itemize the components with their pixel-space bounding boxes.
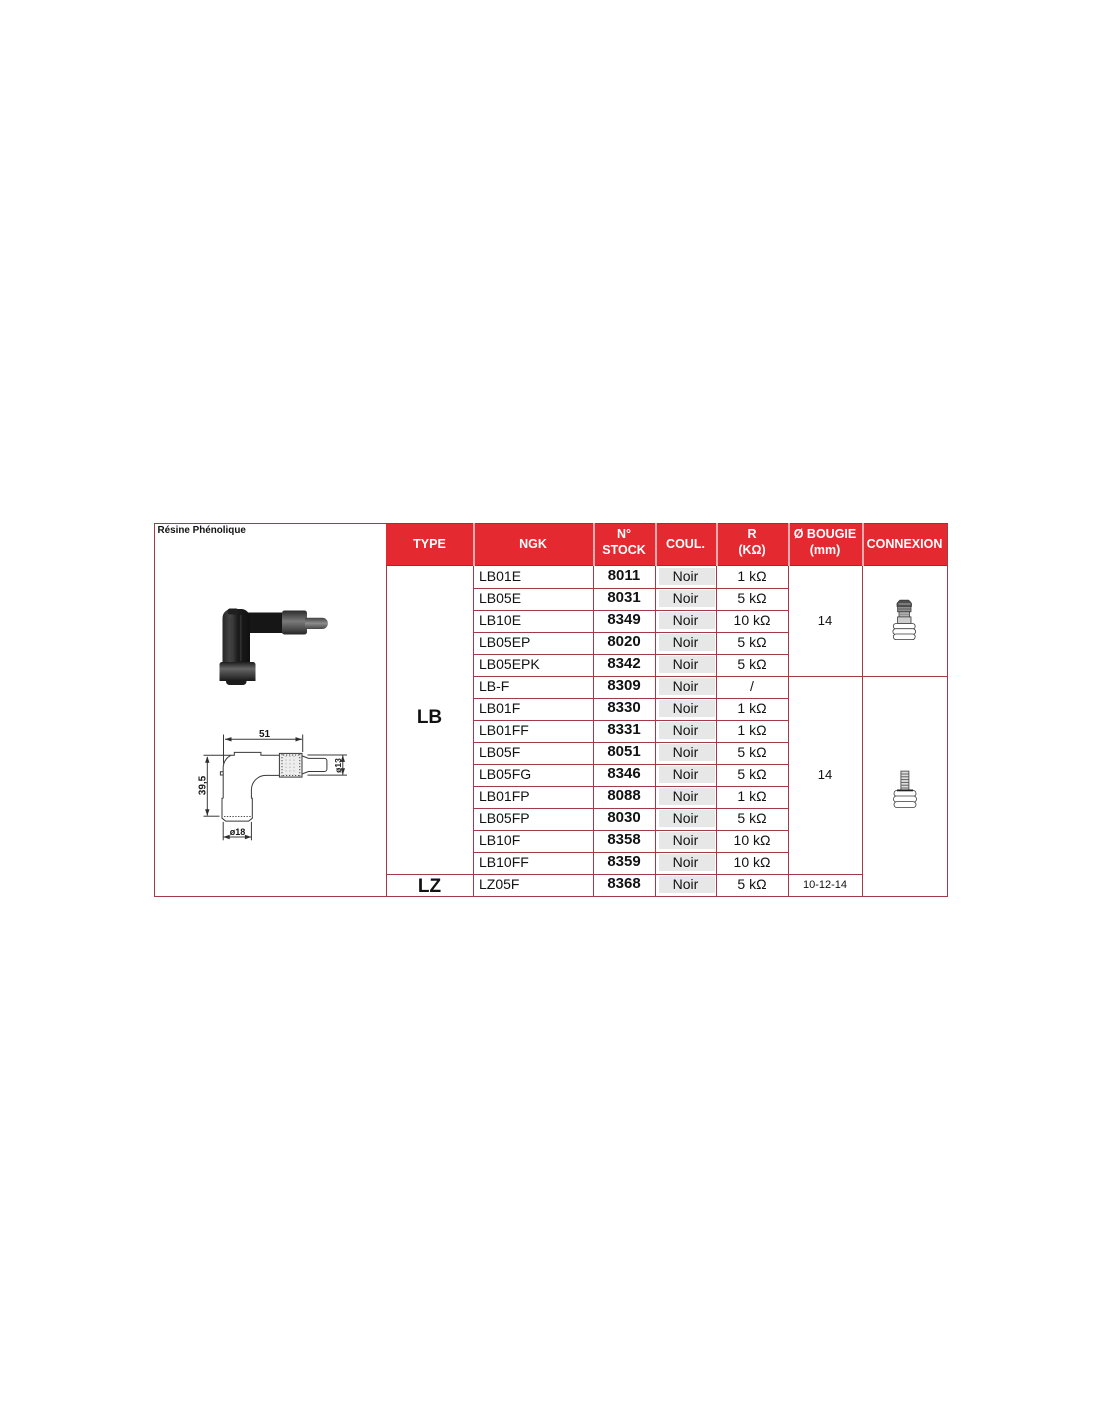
svg-text:39,5: 39,5 — [198, 775, 209, 795]
svg-text:ø13: ø13 — [333, 758, 343, 773]
svg-text:51: 51 — [259, 729, 271, 740]
svg-text:ø18: ø18 — [230, 827, 246, 837]
